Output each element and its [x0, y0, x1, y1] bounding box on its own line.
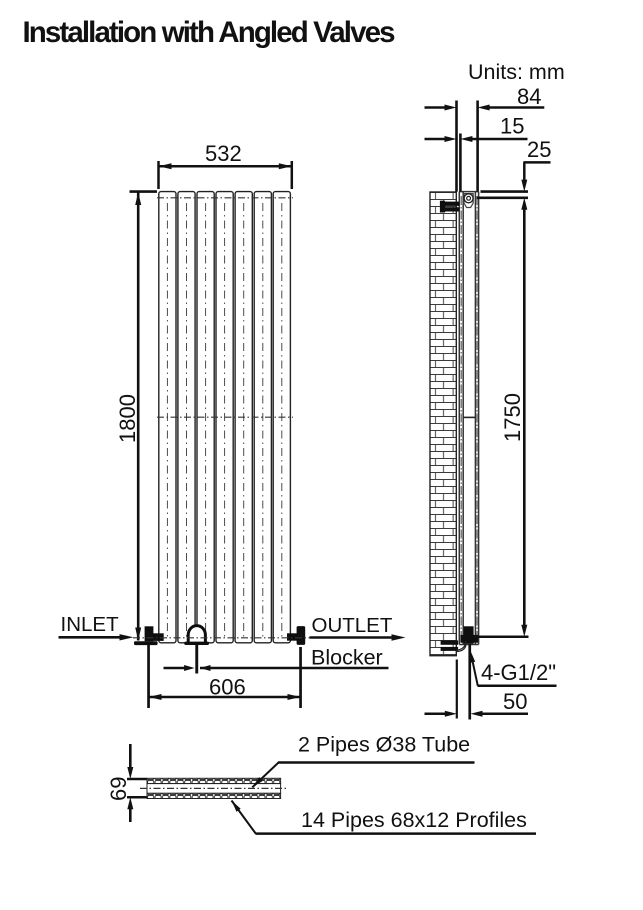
svg-text:Units: mm: Units: mm: [468, 60, 565, 84]
svg-text:84: 84: [517, 84, 541, 109]
svg-text:1800: 1800: [115, 394, 140, 443]
svg-text:15: 15: [500, 114, 524, 139]
svg-text:OUTLET: OUTLET: [312, 614, 393, 637]
svg-text:532: 532: [205, 141, 242, 166]
svg-text:2 Pipes Ø38 Tube: 2 Pipes Ø38 Tube: [298, 733, 470, 757]
svg-text:14 Pipes 68x12 Profiles: 14 Pipes 68x12 Profiles: [301, 808, 527, 832]
svg-text:606: 606: [209, 675, 246, 700]
svg-text:4-G1/2": 4-G1/2": [481, 660, 556, 685]
svg-text:Installation with Angled Valve: Installation with Angled Valves: [23, 16, 396, 49]
svg-text:50: 50: [503, 689, 527, 714]
svg-text:Blocker: Blocker: [311, 646, 383, 670]
svg-text:1750: 1750: [500, 393, 525, 442]
svg-text:INLET: INLET: [61, 613, 120, 636]
svg-text:25: 25: [527, 137, 551, 162]
svg-text:69: 69: [106, 777, 131, 801]
